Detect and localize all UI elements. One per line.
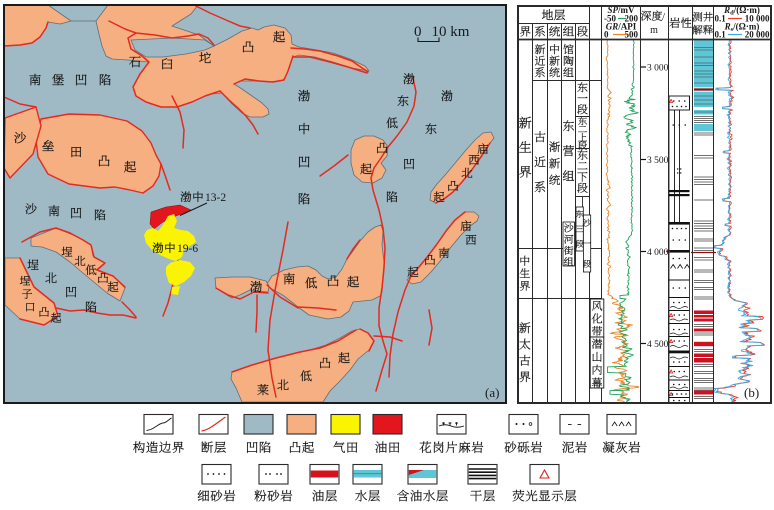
svg-text:(a): (a)	[485, 385, 499, 400]
svg-text:0.1: 0.1	[715, 30, 727, 40]
svg-text:3 500: 3 500	[647, 156, 669, 166]
svg-text:20 000: 20 000	[745, 30, 770, 40]
svg-text:m: m	[650, 25, 658, 36]
svg-text:4 000: 4 000	[647, 248, 669, 258]
svg-text:13-2: 13-2	[205, 192, 226, 204]
svg-text:3 000: 3 000	[647, 63, 669, 73]
svg-text:0 10 km: 0 10 km	[414, 24, 470, 40]
svg-text:19-6: 19-6	[177, 243, 198, 255]
svg-text:4 500: 4 500	[647, 340, 669, 350]
svg-text:0: 0	[604, 30, 609, 40]
svg-text:(b): (b)	[744, 385, 759, 400]
